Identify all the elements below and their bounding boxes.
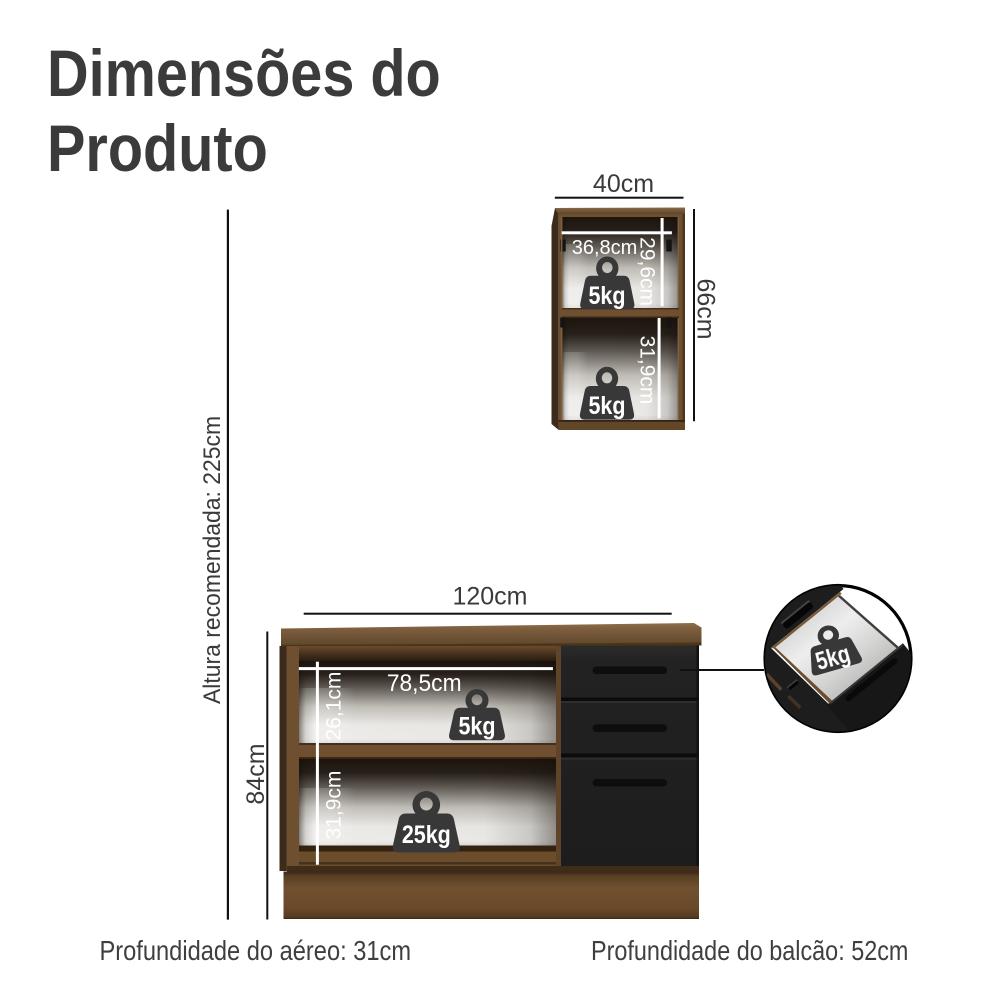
svg-text:84cm: 84cm bbox=[242, 743, 270, 804]
svg-text:5kg: 5kg bbox=[458, 712, 495, 740]
svg-text:29,6cm: 29,6cm bbox=[636, 237, 659, 306]
svg-text:25kg: 25kg bbox=[402, 820, 451, 848]
svg-text:66cm: 66cm bbox=[691, 278, 719, 339]
svg-text:78,5cm: 78,5cm bbox=[387, 669, 462, 696]
svg-text:36,8cm: 36,8cm bbox=[572, 237, 638, 259]
svg-text:Dimensões do: Dimensões do bbox=[47, 37, 441, 111]
svg-text:26,1cm: 26,1cm bbox=[322, 672, 345, 741]
svg-text:5kg: 5kg bbox=[588, 391, 625, 419]
svg-text:31,9cm: 31,9cm bbox=[322, 771, 345, 840]
svg-text:40cm: 40cm bbox=[593, 170, 654, 198]
svg-text:120cm: 120cm bbox=[452, 583, 527, 611]
svg-text:Profundidade do aéreo: 31cm: Profundidade do aéreo: 31cm bbox=[100, 936, 412, 966]
svg-text:31,9cm: 31,9cm bbox=[636, 336, 659, 405]
svg-text:5kg: 5kg bbox=[588, 281, 625, 309]
svg-text:Profundidade do balcão: 52cm: Profundidade do balcão: 52cm bbox=[591, 936, 908, 966]
svg-text:Altura recomendada: 225cm: Altura recomendada: 225cm bbox=[198, 416, 225, 704]
svg-text:Produto: Produto bbox=[47, 112, 268, 186]
